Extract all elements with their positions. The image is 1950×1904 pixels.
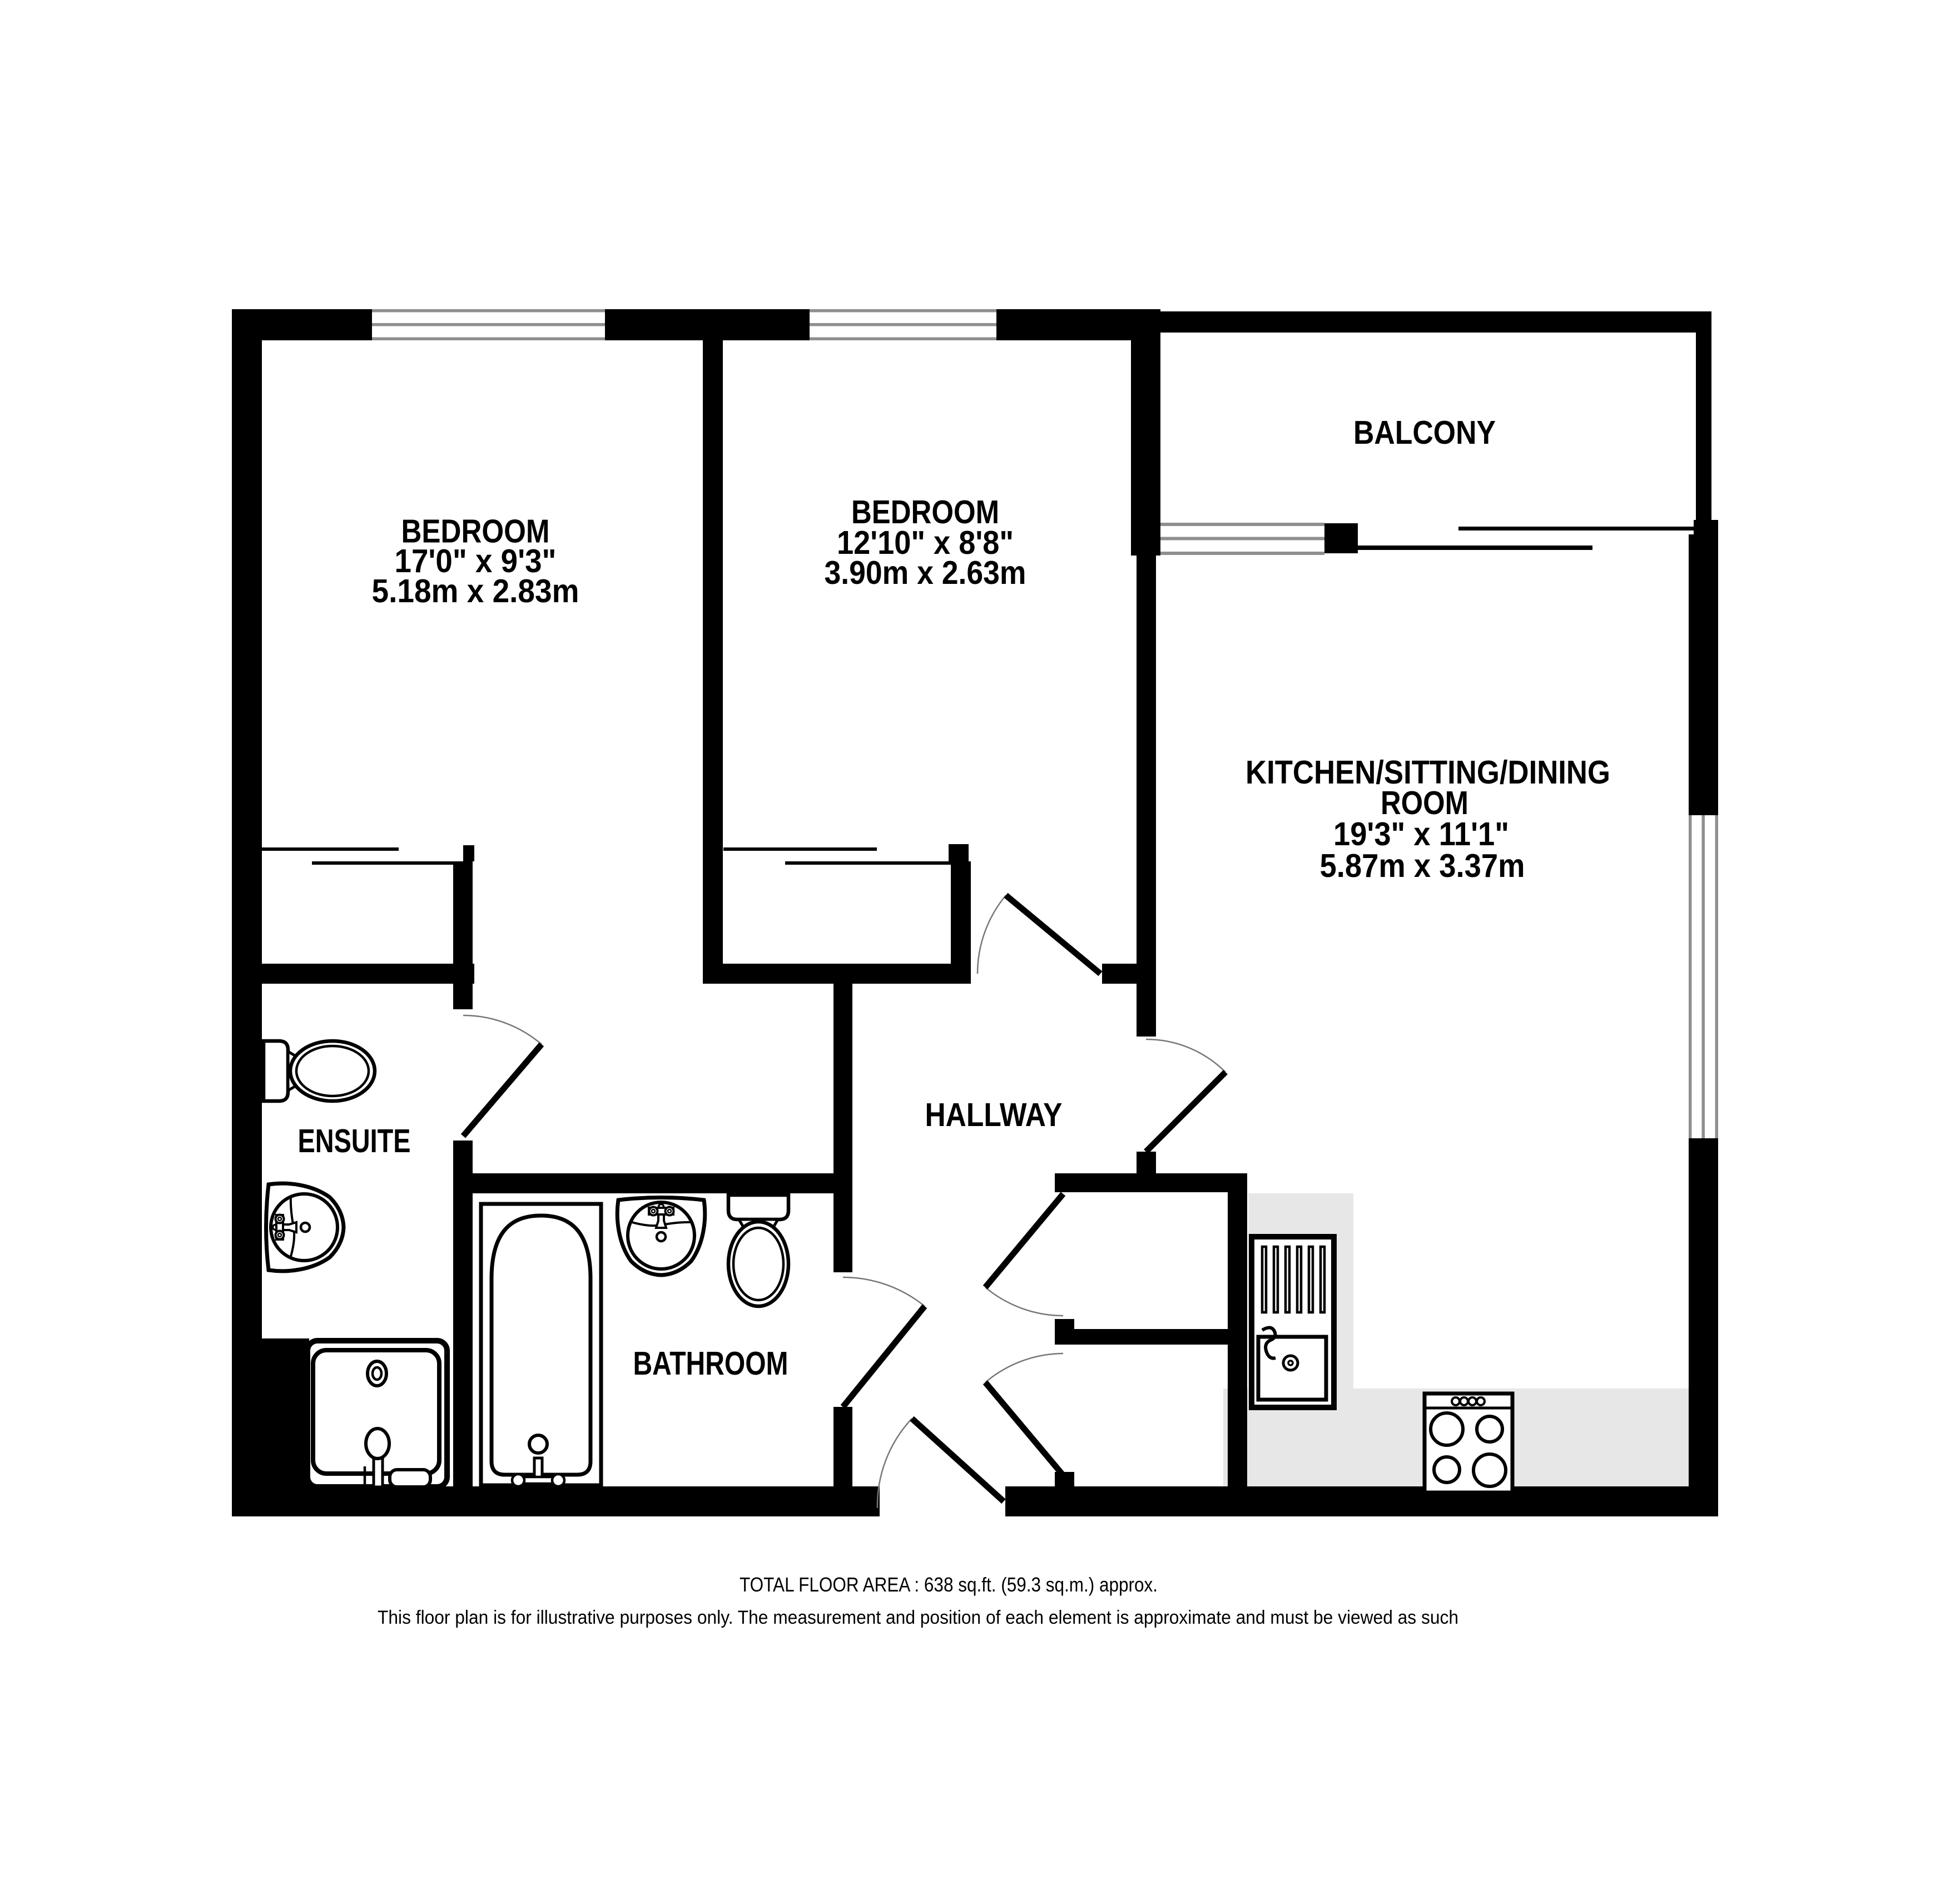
svg-text:3.90m x 2.63m: 3.90m x 2.63m [825, 554, 1026, 591]
svg-text:ENSUITE: ENSUITE [298, 1123, 411, 1159]
svg-text:TOTAL FLOOR AREA : 638 sq.ft.: TOTAL FLOOR AREA : 638 sq.ft. (59.3 sq.m… [740, 1573, 1158, 1596]
svg-text:5.18m x 2.83m: 5.18m x 2.83m [372, 573, 579, 609]
svg-text:5.87m x 3.37m: 5.87m x 3.37m [1320, 847, 1525, 884]
svg-text:HALLWAY: HALLWAY [925, 1097, 1063, 1133]
svg-text:BALCONY: BALCONY [1353, 414, 1496, 451]
svg-text:BATHROOM: BATHROOM [633, 1345, 788, 1382]
svg-text:This floor plan is for illustr: This floor plan is for illustrative purp… [378, 1607, 1458, 1628]
